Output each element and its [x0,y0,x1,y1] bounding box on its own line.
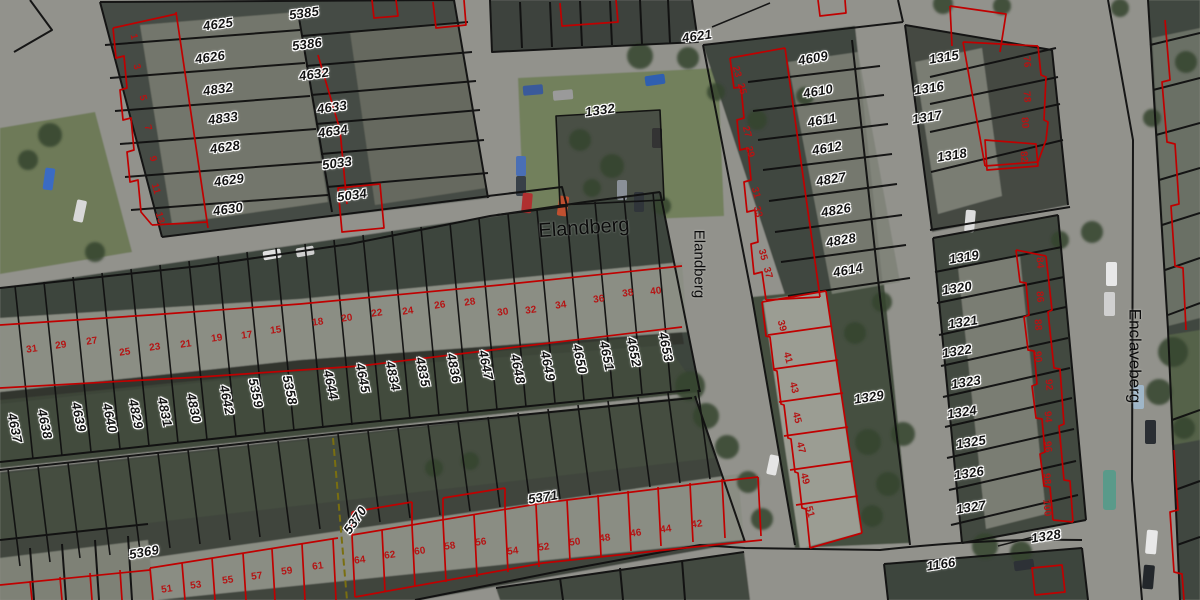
map-viewport[interactable]: 4625538546265386483246324833463346284634… [0,0,1200,600]
aerial-basemap [0,0,1200,600]
terrain-layer [0,0,1200,600]
